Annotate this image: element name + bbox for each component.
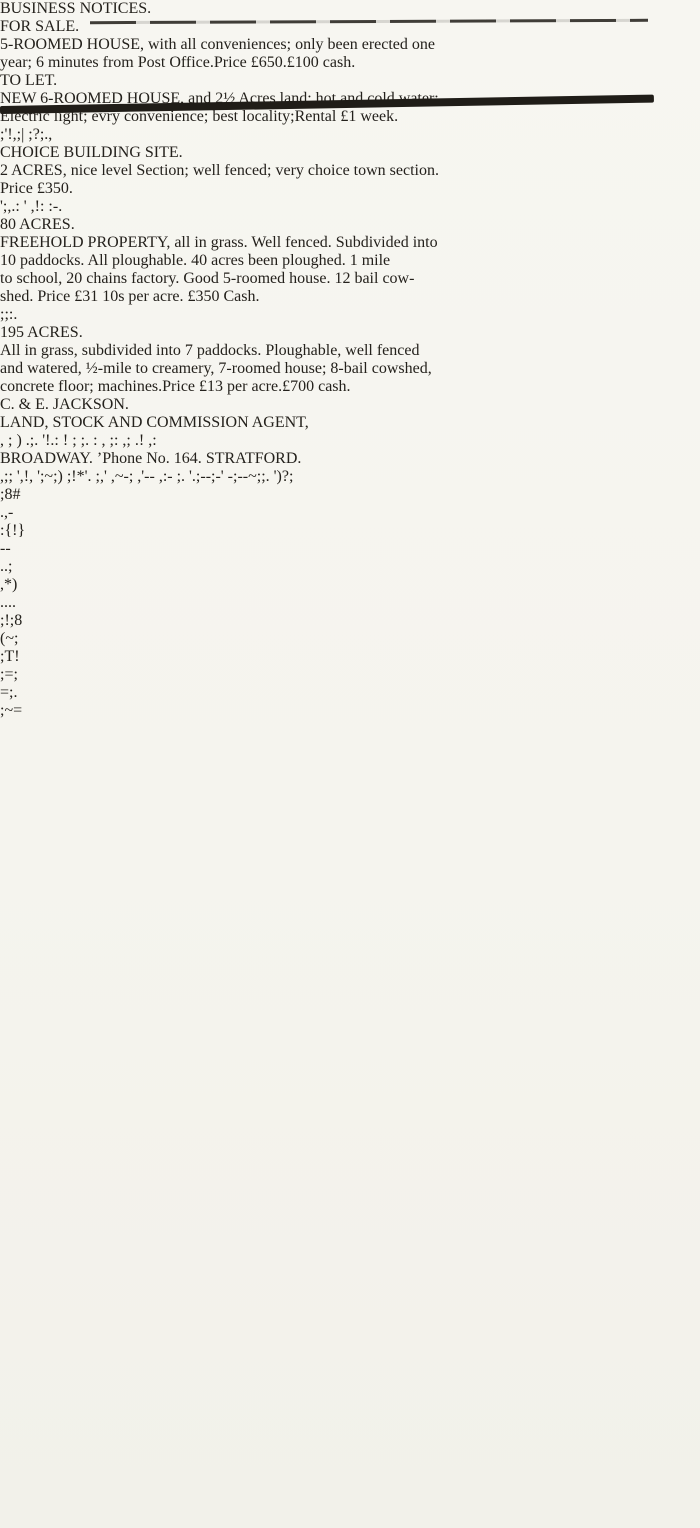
listing-80-acres-line3: to school, 20 chains factory. Good 5-roo… bbox=[0, 270, 700, 288]
to-let-rental: Rental £1 week. bbox=[295, 108, 399, 125]
heading-to-let: TO LET. bbox=[0, 72, 700, 90]
margin-print-fragment: ..; bbox=[0, 558, 700, 576]
ad-box-top-border-second bbox=[553, 118, 647, 123]
listing-80-acres-line1: FREEHOLD PROPERTY, all in grass. Well fe… bbox=[0, 234, 700, 252]
for-sale-terms: £100 cash. bbox=[287, 54, 355, 71]
listing-for-sale-line2-text: year; 6 minutes from Post Office. bbox=[0, 54, 214, 71]
agent-town: STRATFORD. bbox=[206, 450, 302, 467]
listing-for-sale: 5-ROOMED HOUSE, with all conveniences; o… bbox=[0, 36, 700, 72]
acres-195-terms: £700 cash. bbox=[282, 378, 350, 395]
margin-print-fragment: ;!;8 bbox=[0, 612, 700, 630]
agent-address: BROADWAY. bbox=[0, 450, 93, 467]
listing-for-sale-line1: 5-ROOMED HOUSE, with all conveniences; o… bbox=[0, 36, 700, 54]
print-bleed-smudge: ';,.: ' ,!: :-. bbox=[0, 198, 700, 216]
listing-building-site: 2 ACRES, nice level Section; well fenced… bbox=[0, 162, 700, 198]
page-section-title: BUSINESS NOTICES. bbox=[0, 0, 700, 18]
listing-building-site-line1: 2 ACRES, nice level Section; well fenced… bbox=[0, 162, 700, 180]
acres-195-price: Price £13 per acre. bbox=[162, 378, 282, 395]
margin-print-fragment: .... bbox=[0, 594, 700, 612]
margin-print-fragment: ;~= bbox=[0, 702, 700, 720]
print-bleed-smudge: ;'!,;| ;?;., bbox=[0, 126, 700, 144]
agent-address-line: BROADWAY. ’Phone No. 164. STRATFORD. bbox=[0, 450, 700, 468]
heading-80-acres: 80 ACRES. bbox=[0, 216, 700, 234]
agent-name: C. & E. JACKSON. bbox=[0, 396, 700, 414]
listing-195-acres-line3: concrete floor; machines.Price £13 per a… bbox=[0, 378, 700, 396]
print-bleed-smudge: ,;; ',!, ';~;) ;!*'. ;,' ,~-; ,'-- ,:- ;… bbox=[0, 468, 700, 486]
heading-building-site: CHOICE BUILDING SITE. bbox=[0, 144, 700, 162]
margin-print-fragment: :{!} bbox=[0, 522, 700, 540]
margin-print-fragment: -- bbox=[0, 540, 700, 558]
margin-print-fragment: ,*) bbox=[0, 576, 700, 594]
print-bleed-smudge: , ; ) .;. '!.: ! ; ;. : , ;: ,; .! ,: bbox=[0, 432, 700, 450]
listing-195-acres-line2: and watered, ½-mile to creamery, 7-roome… bbox=[0, 360, 700, 378]
building-site-price: Price £350. bbox=[0, 180, 73, 197]
heading-195-acres: 195 ACRES. bbox=[0, 324, 700, 342]
listing-195-acres-line1: All in grass, subdivided into 7 paddocks… bbox=[0, 342, 700, 360]
newspaper-page: BUSINESS NOTICES. FOR SALE. 5-ROOMED HOU… bbox=[0, 0, 700, 1528]
margin-print-fragment: ;=; bbox=[0, 666, 700, 684]
listing-195-acres-line3-text: concrete floor; machines. bbox=[0, 378, 162, 395]
margin-print-fragment: .,- bbox=[0, 504, 700, 522]
listing-80-acres-line4: shed. Price £31 10s per acre. £350 Cash. bbox=[0, 288, 700, 306]
listing-80-acres: FREEHOLD PROPERTY, all in grass. Well fe… bbox=[0, 234, 700, 306]
margin-print-fragment: (~; bbox=[0, 630, 700, 648]
margin-print-fragment: ;T! bbox=[0, 648, 700, 666]
agent-role: LAND, STOCK AND COMMISSION AGENT, bbox=[0, 414, 700, 432]
listing-building-site-line2: Price £350. bbox=[0, 180, 700, 198]
margin-print-fragment: =;. bbox=[0, 684, 700, 702]
print-bleed-smudge: ;;:. bbox=[0, 306, 700, 324]
margin-print-fragment: ;8# bbox=[0, 486, 700, 504]
listing-80-acres-line2: 10 paddocks. All ploughable. 40 acres be… bbox=[0, 252, 700, 270]
agent-phone: ’Phone No. 164. bbox=[97, 450, 202, 467]
for-sale-price: Price £650. bbox=[214, 54, 287, 71]
listing-195-acres: All in grass, subdivided into 7 paddocks… bbox=[0, 342, 700, 396]
listing-for-sale-line2: year; 6 minutes from Post Office.Price £… bbox=[0, 54, 700, 72]
